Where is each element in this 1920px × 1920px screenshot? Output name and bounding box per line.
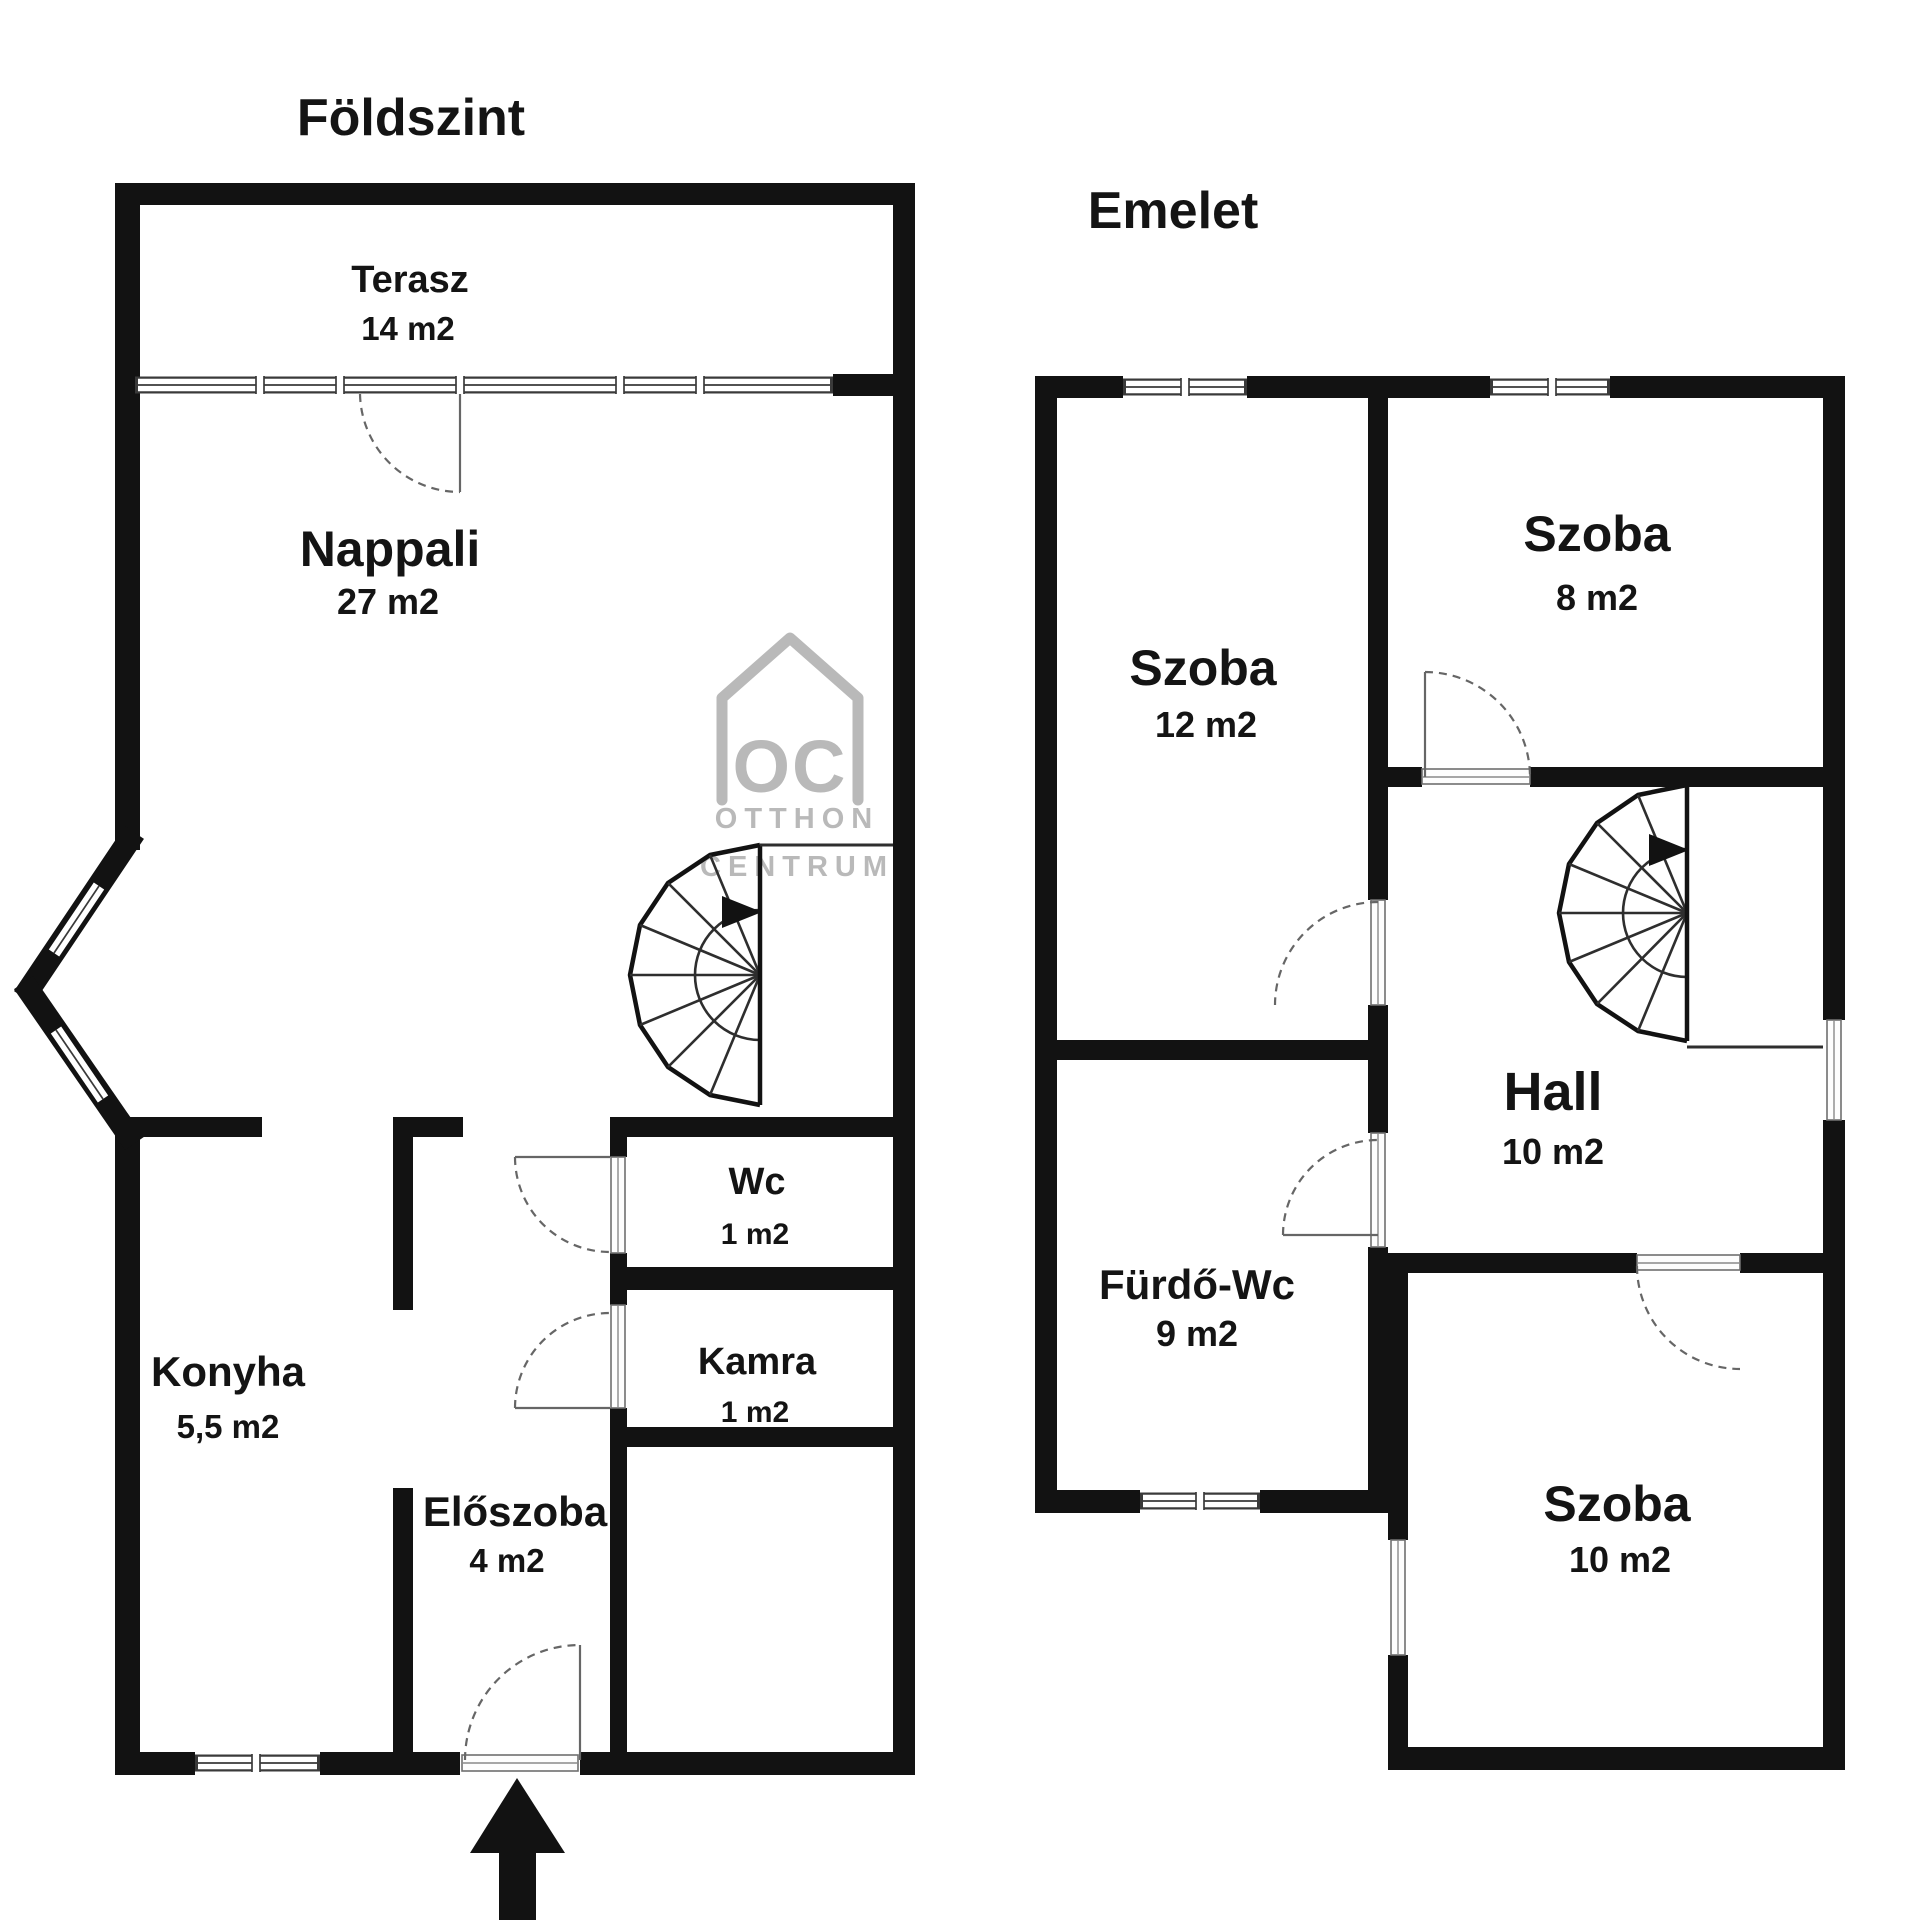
spiral-staircase-ground — [630, 845, 893, 1105]
watermark-line2: CENTRUM — [700, 851, 894, 883]
wall — [610, 1267, 893, 1290]
wall — [115, 183, 915, 205]
room-label-nappali: Nappali — [300, 521, 481, 577]
watermark-line1: OTTHON — [715, 803, 879, 835]
wall — [115, 1117, 262, 1137]
terrace-door — [360, 394, 460, 492]
room-area-szoba8: 8 m2 — [1556, 577, 1638, 618]
room-label-szoba8: Szoba — [1523, 506, 1671, 562]
room-area-wc: 1 m2 — [721, 1218, 789, 1251]
wall — [1368, 1005, 1388, 1133]
upper-floor-plan: Emelet Szoba 12 m2 Szoba 8 m2 Hall 10 m2… — [1035, 182, 1845, 1770]
room-label-furdo-wc: Fürdő-Wc — [1099, 1261, 1295, 1308]
wall — [610, 1117, 893, 1137]
wc-door — [515, 1157, 625, 1253]
ground-floor-plan: Földszint Terasz 14 m2 Nappali 27 m2 Wc … — [30, 89, 915, 1920]
wall — [833, 374, 893, 396]
bathroom-window — [1140, 1492, 1260, 1510]
wall — [610, 1408, 627, 1754]
szoba10-window — [1391, 1540, 1405, 1655]
wall — [1823, 376, 1845, 1020]
kitchen-window — [195, 1754, 320, 1772]
room-label-terasz: Terasz — [351, 259, 469, 301]
room-area-furdo-wc: 9 m2 — [1156, 1313, 1238, 1354]
ground-floor-title: Földszint — [297, 89, 525, 147]
wall — [115, 1122, 140, 1775]
wall — [115, 183, 140, 850]
room-label-eloszoba: Előszoba — [423, 1488, 608, 1535]
szoba8-door — [1422, 672, 1530, 784]
wall — [1740, 1253, 1845, 1273]
wall — [1035, 1490, 1140, 1513]
room-area-kamra: 1 m2 — [721, 1396, 789, 1429]
wall — [610, 1427, 893, 1447]
wall — [1610, 376, 1845, 398]
room-label-kamra: Kamra — [698, 1341, 817, 1383]
spiral-staircase-upper — [1559, 785, 1823, 1047]
room-label-wc: Wc — [729, 1161, 786, 1203]
upper-floor-title: Emelet — [1088, 182, 1259, 240]
stair-direction-arrow-icon — [1649, 834, 1689, 866]
room-area-terasz: 14 m2 — [361, 310, 455, 347]
wall — [1388, 1747, 1845, 1770]
floor-plan-page: OC OTTHON CENTRUM — [0, 0, 1920, 1920]
szoba8-window — [1490, 378, 1610, 396]
terrace-window-band — [135, 374, 893, 396]
watermark-logo-text: OC — [733, 725, 848, 808]
wall — [1035, 1040, 1368, 1060]
wall — [1368, 1247, 1388, 1513]
entry-arrow-icon — [470, 1778, 565, 1920]
room-area-eloszoba: 4 m2 — [469, 1542, 544, 1579]
room-label-hall: Hall — [1503, 1062, 1602, 1122]
room-area-hall: 10 m2 — [1502, 1131, 1604, 1172]
wall — [1035, 376, 1057, 1513]
szoba12-window — [1123, 378, 1247, 396]
room-label-szoba10: Szoba — [1543, 1476, 1691, 1532]
wall — [320, 1752, 460, 1775]
wall — [1823, 1120, 1845, 1770]
entry-door — [462, 1645, 580, 1771]
wall — [1388, 1273, 1408, 1540]
wall — [893, 183, 915, 1775]
room-label-szoba12: Szoba — [1129, 640, 1277, 696]
wall — [393, 1117, 413, 1310]
szoba10-door — [1637, 1255, 1740, 1369]
kamra-door — [515, 1305, 625, 1408]
wall — [610, 1137, 627, 1157]
room-area-nappali: 27 m2 — [337, 581, 439, 622]
wall — [1247, 376, 1490, 398]
room-area-szoba10: 10 m2 — [1569, 1539, 1671, 1580]
room-area-szoba12: 12 m2 — [1155, 704, 1257, 745]
bay-window — [30, 842, 128, 1134]
stair-direction-arrow-icon — [722, 896, 762, 928]
wall — [393, 1488, 413, 1754]
room-label-konyha: Konyha — [151, 1348, 306, 1395]
wall — [1368, 398, 1388, 900]
wall — [1388, 1253, 1637, 1273]
wall — [580, 1752, 915, 1775]
wall — [1388, 767, 1422, 787]
room-area-konyha: 5,5 m2 — [177, 1408, 280, 1445]
wall — [1530, 767, 1845, 787]
floor-plan-drawing: OC OTTHON CENTRUM — [0, 0, 1920, 1920]
hall-side-window — [1827, 1020, 1841, 1120]
furdo-wc-door — [1283, 1133, 1385, 1247]
szoba12-door — [1275, 900, 1385, 1005]
